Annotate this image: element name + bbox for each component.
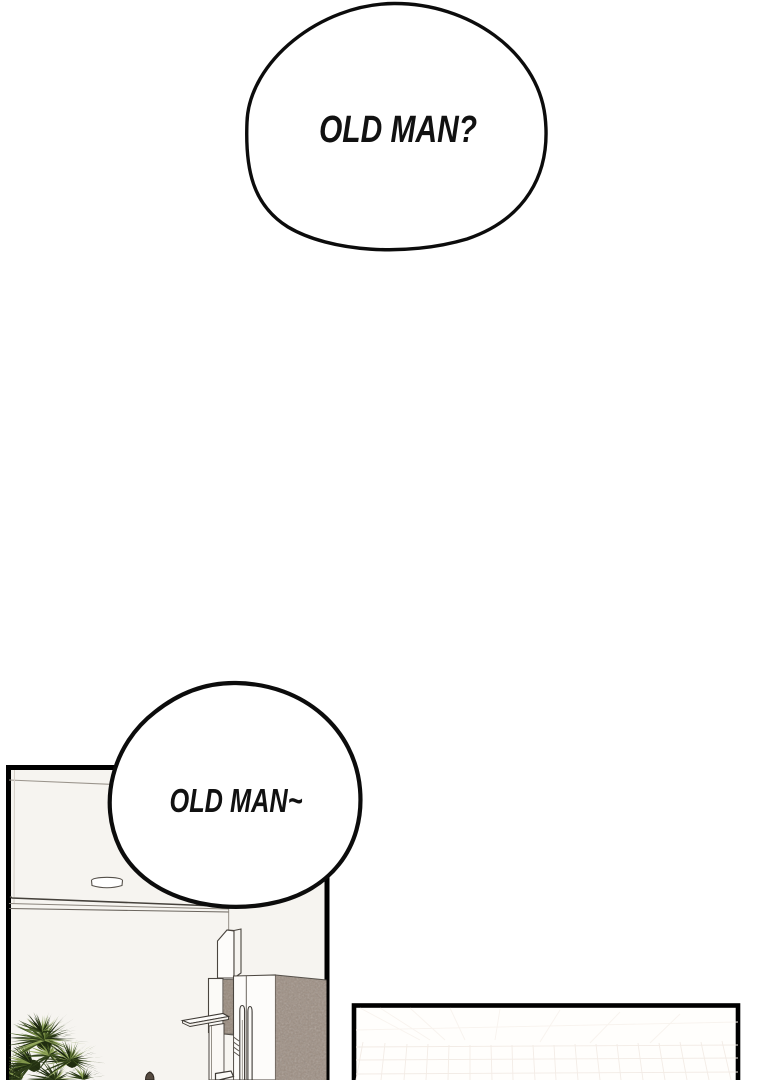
svg-text:OLD MAN?: OLD MAN?	[319, 109, 477, 151]
svg-text:OLD MAN~: OLD MAN~	[170, 782, 303, 819]
